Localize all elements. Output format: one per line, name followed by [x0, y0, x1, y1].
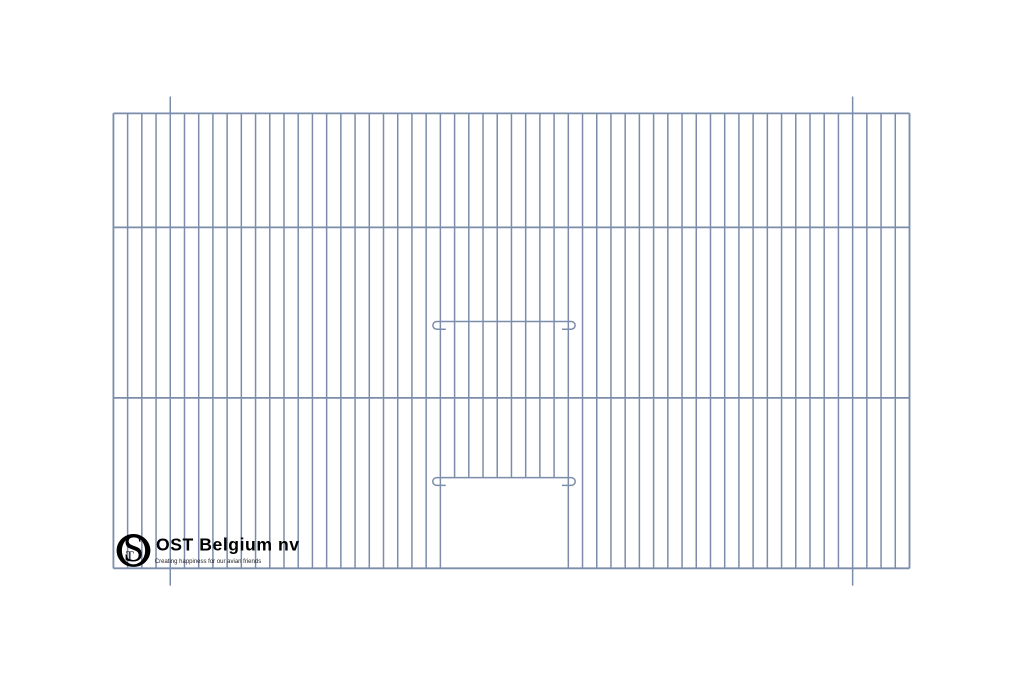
svg-text:Creating happiness for our avi: Creating happiness for our avian friends: [155, 559, 261, 565]
svg-text:OST Belgium nv: OST Belgium nv: [156, 535, 300, 555]
svg-text:T: T: [126, 548, 134, 563]
